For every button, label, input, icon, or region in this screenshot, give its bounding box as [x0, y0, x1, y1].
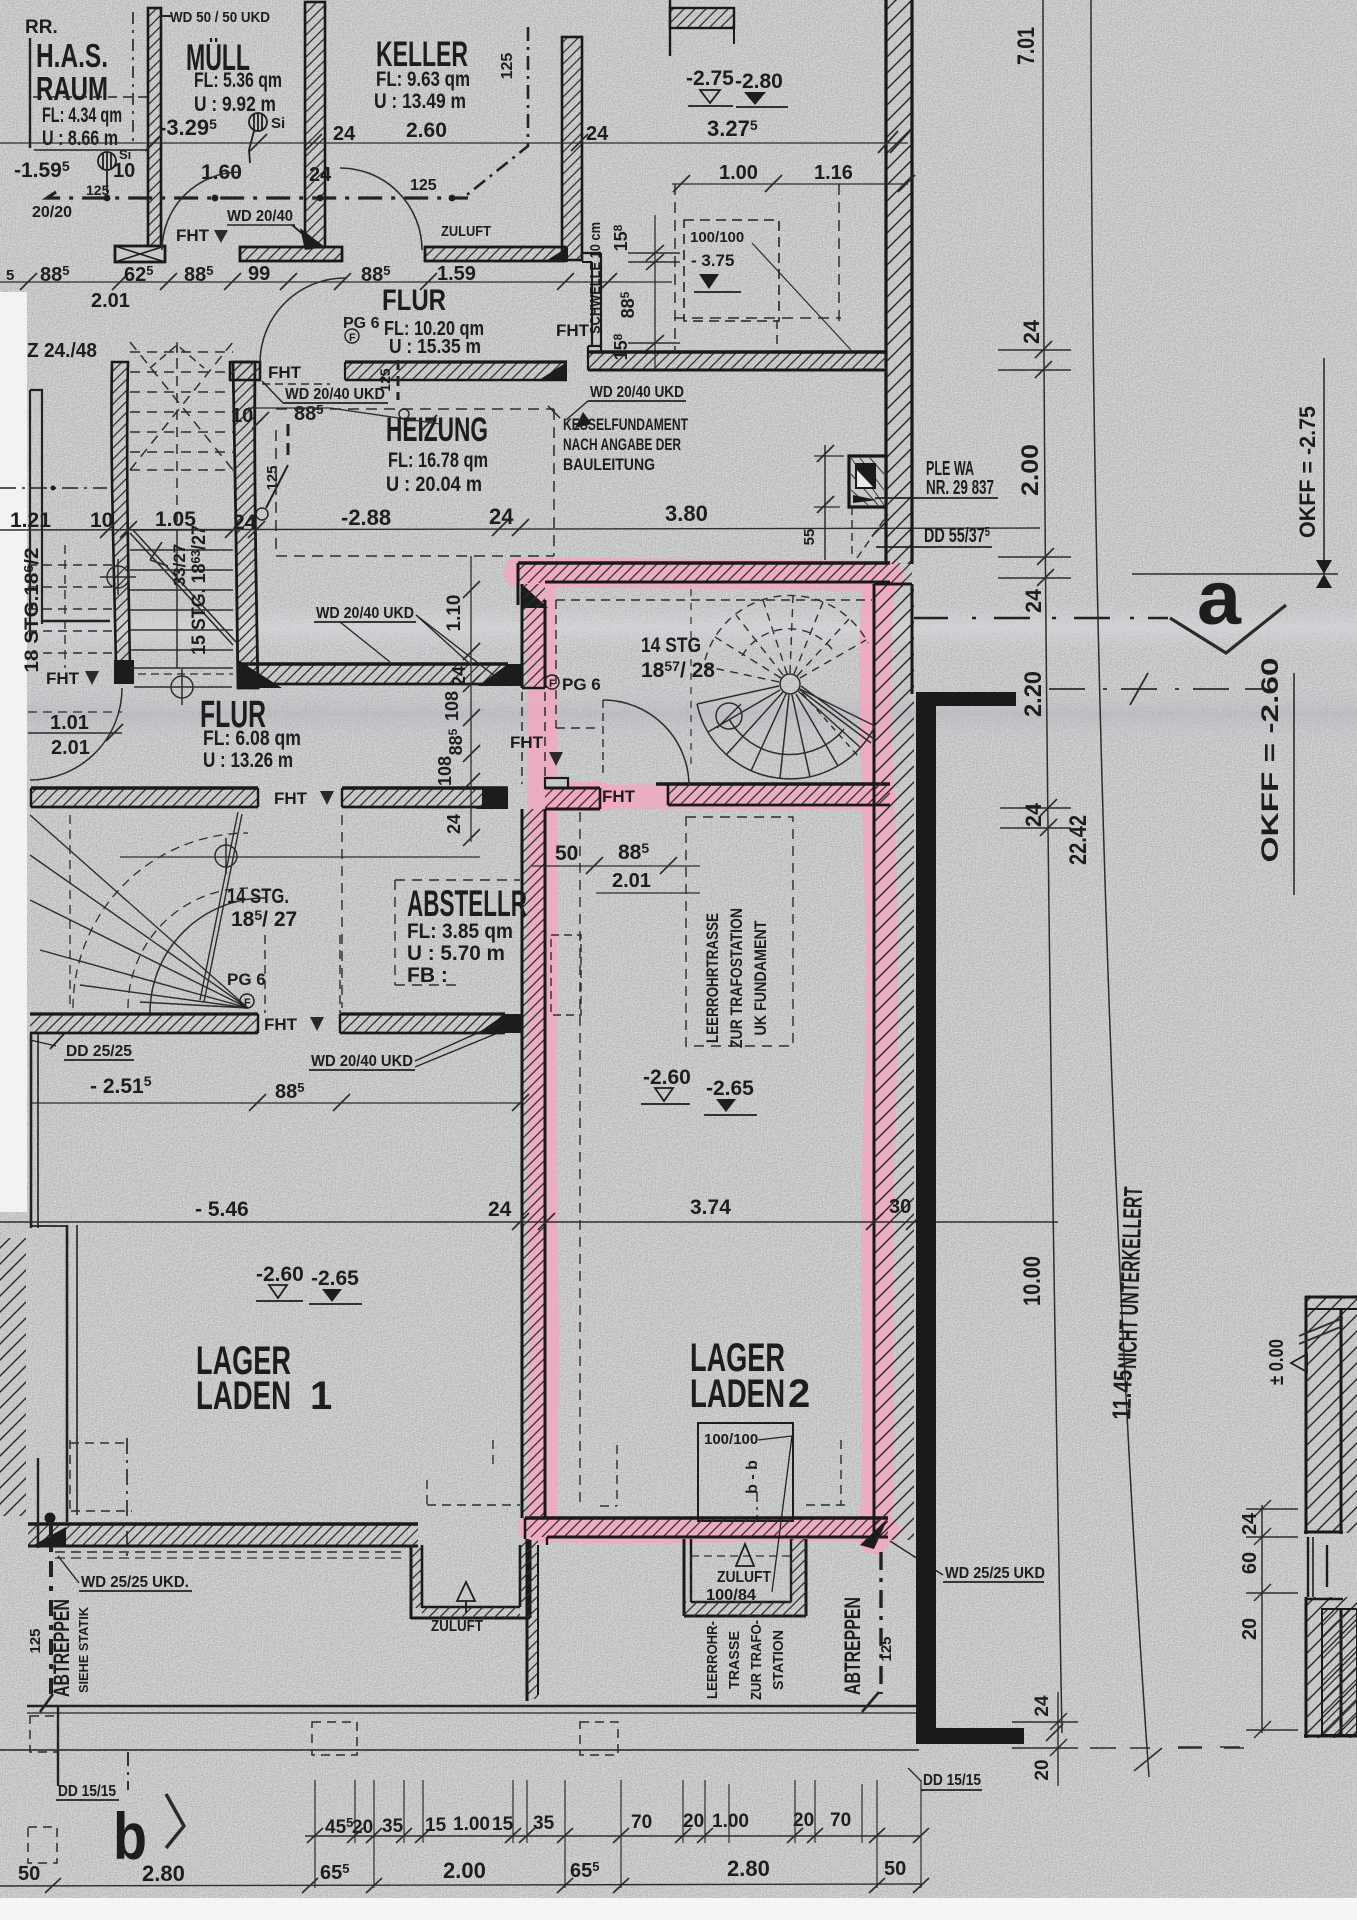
svg-text:20: 20	[793, 1810, 814, 1831]
svg-text:-3.295: -3.295	[159, 115, 217, 140]
svg-text:1.16: 1.16	[814, 162, 853, 184]
svg-text:Si: Si	[271, 115, 285, 132]
svg-text:24: 24	[1032, 1695, 1053, 1717]
svg-text:2.01: 2.01	[51, 737, 90, 759]
svg-text:U : 8.66 m: U : 8.66 m	[42, 127, 118, 150]
svg-text:2.80: 2.80	[142, 1861, 185, 1886]
svg-text:HEIZUNG: HEIZUNG	[386, 411, 488, 449]
svg-text:- 2.515: - 2.515	[90, 1073, 152, 1098]
svg-text:20: 20	[1239, 1618, 1261, 1640]
svg-text:3.74: 3.74	[690, 1196, 731, 1219]
svg-text:U : 13.49 m: U : 13.49 m	[374, 90, 466, 113]
svg-text:10: 10	[90, 509, 113, 532]
svg-text:2.20: 2.20	[1020, 671, 1047, 717]
svg-text:ABSTELLR: ABSTELLR	[407, 883, 527, 924]
svg-text:a: a	[1197, 556, 1242, 641]
svg-text:-2.65: -2.65	[706, 1077, 754, 1100]
svg-text:FHT: FHT	[510, 733, 544, 752]
svg-text:FB :: FB :	[407, 964, 448, 987]
svg-text:F: F	[549, 678, 556, 690]
svg-text:LADEN: LADEN	[690, 1372, 785, 1416]
svg-text:2.60: 2.60	[406, 119, 447, 142]
svg-text:1.00: 1.00	[453, 1814, 490, 1835]
svg-text:H.A.S.: H.A.S.	[36, 37, 108, 74]
svg-text:- 3.75: - 3.75	[691, 251, 734, 270]
svg-text:BAULEITUNG: BAULEITUNG	[563, 455, 655, 474]
svg-text:70: 70	[631, 1812, 652, 1833]
svg-text:NICHT UNTERKELLERT: NICHT UNTERKELLERT	[1112, 1186, 1148, 1369]
svg-text:14 STG: 14 STG	[641, 634, 701, 657]
svg-text:3.80: 3.80	[665, 501, 708, 526]
svg-text:24: 24	[1019, 319, 1044, 344]
svg-text:10.00: 10.00	[1019, 1256, 1046, 1306]
svg-text:99: 99	[248, 263, 270, 285]
svg-text:7.01: 7.01	[1013, 27, 1040, 65]
svg-text:WD 20/40 UKD: WD 20/40 UKD	[590, 384, 684, 401]
svg-text:WD 20/40 UKD: WD 20/40 UKD	[316, 605, 414, 622]
svg-text:FHT: FHT	[268, 363, 302, 382]
svg-text:FHT: FHT	[176, 226, 210, 245]
svg-text:FHT: FHT	[46, 669, 80, 688]
svg-text:24: 24	[1021, 588, 1046, 613]
svg-text:-2.65: -2.65	[311, 1267, 359, 1290]
svg-text:1.01: 1.01	[50, 712, 89, 734]
svg-text:UK FUNDAMENT: UK FUNDAMENT	[751, 920, 770, 1036]
svg-text:DD 15/15: DD 15/15	[58, 1783, 116, 1800]
svg-text:1.59: 1.59	[437, 263, 476, 285]
svg-text:50: 50	[555, 842, 578, 865]
svg-text:24: 24	[488, 1198, 512, 1221]
svg-text:FLUR: FLUR	[382, 284, 446, 317]
svg-text:ZULUFT: ZULUFT	[441, 223, 491, 240]
svg-text:108: 108	[442, 691, 462, 721]
svg-text:WD 25/25 UKD: WD 25/25 UKD	[945, 1565, 1045, 1582]
svg-text:15: 15	[425, 1815, 447, 1836]
svg-text:PG 6: PG 6	[562, 675, 601, 694]
svg-text:F: F	[244, 997, 251, 1009]
svg-text:-1.595: -1.595	[14, 158, 70, 182]
svg-text:35: 35	[533, 1813, 555, 1834]
svg-text:125: 125	[410, 177, 437, 194]
svg-text:55: 55	[801, 529, 818, 546]
svg-text:-2.75: -2.75	[686, 67, 734, 90]
svg-text:± 0.00: ± 0.00	[1266, 1339, 1288, 1385]
svg-text:U : 9.92 m: U : 9.92 m	[194, 93, 276, 116]
svg-text:FL: 9.63 qm: FL: 9.63 qm	[376, 68, 470, 91]
svg-text:WD 25/25 UKD.: WD 25/25 UKD.	[81, 1574, 189, 1591]
svg-text:33/27: 33/27	[170, 544, 189, 587]
svg-text:70: 70	[830, 1810, 851, 1831]
svg-text:2.80: 2.80	[727, 1856, 770, 1881]
svg-text:ZULUFT: ZULUFT	[431, 1618, 483, 1635]
svg-text:DD 15/15: DD 15/15	[923, 1772, 981, 1789]
svg-text:1: 1	[310, 1374, 332, 1418]
svg-text:U : 15.35 m: U : 15.35 m	[389, 336, 481, 358]
svg-text:- 5.46: - 5.46	[195, 1198, 249, 1221]
svg-text:FL: 4.34 qm: FL: 4.34 qm	[42, 104, 122, 127]
svg-text:50: 50	[18, 1863, 40, 1885]
svg-text:STATION: STATION	[770, 1630, 787, 1690]
svg-text:FHT: FHT	[264, 1015, 298, 1034]
svg-text:24: 24	[233, 511, 257, 534]
svg-text:DD 55/375: DD 55/375	[924, 524, 990, 547]
svg-text:2.01: 2.01	[612, 870, 651, 892]
svg-text:ZUR TRAFO-: ZUR TRAFO-	[748, 1620, 765, 1700]
svg-text:2.00: 2.00	[443, 1858, 486, 1883]
svg-text:U : 13.26 m: U : 13.26 m	[203, 749, 293, 772]
svg-text:20: 20	[1032, 1759, 1053, 1780]
svg-text:15: 15	[492, 1814, 514, 1835]
svg-text:24: 24	[586, 123, 609, 145]
svg-text:LADEN: LADEN	[196, 1374, 291, 1418]
svg-text:U : 20.04 m: U : 20.04 m	[386, 473, 482, 496]
svg-text:125: 125	[264, 465, 281, 490]
svg-text:11.45: 11.45	[1106, 1369, 1138, 1420]
svg-text:OKFF = -2.75: OKFF = -2.75	[1295, 406, 1320, 538]
svg-text:FL: 5.36 qm: FL: 5.36 qm	[194, 69, 282, 92]
svg-text:100/100: 100/100	[704, 1431, 758, 1448]
svg-text:DD 25/25: DD 25/25	[66, 1043, 132, 1060]
svg-text:24: 24	[444, 814, 464, 834]
svg-text:ZULUFT: ZULUFT	[717, 1569, 771, 1586]
svg-text:2.01: 2.01	[91, 290, 130, 312]
svg-text:TRASSE: TRASSE	[726, 1631, 743, 1689]
svg-text:FHT: FHT	[556, 321, 590, 340]
svg-text:20/20: 20/20	[32, 204, 72, 221]
svg-text:125: 125	[377, 368, 393, 392]
svg-text:2: 2	[788, 1372, 810, 1416]
svg-text:100/100: 100/100	[690, 229, 744, 246]
svg-text:1.21: 1.21	[10, 509, 51, 532]
svg-text:-2.80: -2.80	[735, 70, 783, 93]
svg-text:SIEHE STATIK: SIEHE STATIK	[76, 1606, 91, 1693]
svg-text:125: 125	[878, 1636, 895, 1661]
svg-text:60: 60	[1239, 1552, 1261, 1574]
svg-text:LEERROHRTRASSE: LEERROHRTRASSE	[703, 913, 722, 1043]
svg-text:ABTREPPEN: ABTREPPEN	[840, 1597, 865, 1695]
svg-text:ZUR TRAFOSTATION: ZUR TRAFOSTATION	[727, 908, 746, 1048]
svg-text:FHT: FHT	[274, 789, 308, 808]
svg-text:1.00: 1.00	[719, 162, 758, 184]
svg-text:22.42: 22.42	[1065, 815, 1092, 865]
svg-text:F: F	[349, 332, 356, 344]
svg-text:WD 50 / 50 UKD: WD 50 / 50 UKD	[170, 9, 270, 26]
svg-text:100/84: 100/84	[706, 1587, 756, 1604]
svg-text:24: 24	[1021, 802, 1046, 827]
svg-text:5: 5	[6, 267, 14, 284]
svg-text:108: 108	[435, 756, 455, 786]
svg-text:50: 50	[884, 1858, 906, 1880]
svg-text:24: 24	[449, 666, 469, 686]
svg-text:FL: 6.08 qm: FL: 6.08 qm	[203, 727, 301, 750]
svg-text:-2.60: -2.60	[643, 1066, 691, 1089]
svg-text:125: 125	[27, 1628, 44, 1653]
svg-text:NACH ANGABE DER: NACH ANGABE DER	[563, 435, 681, 454]
svg-text:185/ 27: 185/ 27	[231, 907, 297, 931]
svg-text:WD 20/40 UKD: WD 20/40 UKD	[311, 1053, 413, 1070]
svg-text:15 STG. 1863/27: 15 STG. 1863/27	[188, 525, 210, 655]
svg-text:WD 20/40 UKD: WD 20/40 UKD	[285, 386, 385, 403]
svg-text:30: 30	[889, 1196, 911, 1218]
svg-text:FHT: FHT	[602, 787, 636, 806]
svg-text:24: 24	[489, 504, 514, 529]
svg-text:1.10: 1.10	[444, 595, 465, 632]
svg-text:1.05: 1.05	[155, 508, 196, 531]
svg-text:24: 24	[333, 123, 356, 145]
svg-text:ABTREPPEN: ABTREPPEN	[49, 1599, 74, 1697]
svg-text:1.00: 1.00	[712, 1811, 749, 1832]
svg-text:FL: 16.78 qm: FL: 16.78 qm	[388, 449, 488, 472]
svg-text:2.00: 2.00	[1017, 444, 1044, 496]
svg-text:14 STG.: 14 STG.	[227, 885, 289, 908]
svg-text:Z 24./48: Z 24./48	[27, 340, 97, 362]
svg-text:125: 125	[499, 53, 516, 80]
svg-text:NR. 29 837: NR. 29 837	[926, 477, 994, 499]
svg-text:-2.88: -2.88	[341, 505, 391, 530]
svg-text:LEERROHR-: LEERROHR-	[704, 1621, 721, 1699]
svg-text:RAUM: RAUM	[36, 70, 108, 107]
svg-text:20: 20	[683, 1811, 704, 1832]
svg-text:-2.60: -2.60	[256, 1263, 304, 1286]
svg-text:b - b: b - b	[744, 1460, 761, 1494]
svg-text:Si: Si	[119, 147, 131, 162]
svg-text:WD 20/40: WD 20/40	[227, 208, 293, 225]
svg-text:OKFF = -2.60: OKFF = -2.60	[1257, 658, 1284, 863]
svg-text:35: 35	[382, 1816, 404, 1837]
svg-text:U : 5.70 m: U : 5.70 m	[407, 942, 505, 965]
svg-text:FL: 3.85 qm: FL: 3.85 qm	[407, 920, 513, 943]
svg-text:24: 24	[1239, 1512, 1261, 1535]
svg-text:RR.: RR.	[25, 17, 58, 38]
svg-text:PG 6: PG 6	[227, 970, 266, 989]
